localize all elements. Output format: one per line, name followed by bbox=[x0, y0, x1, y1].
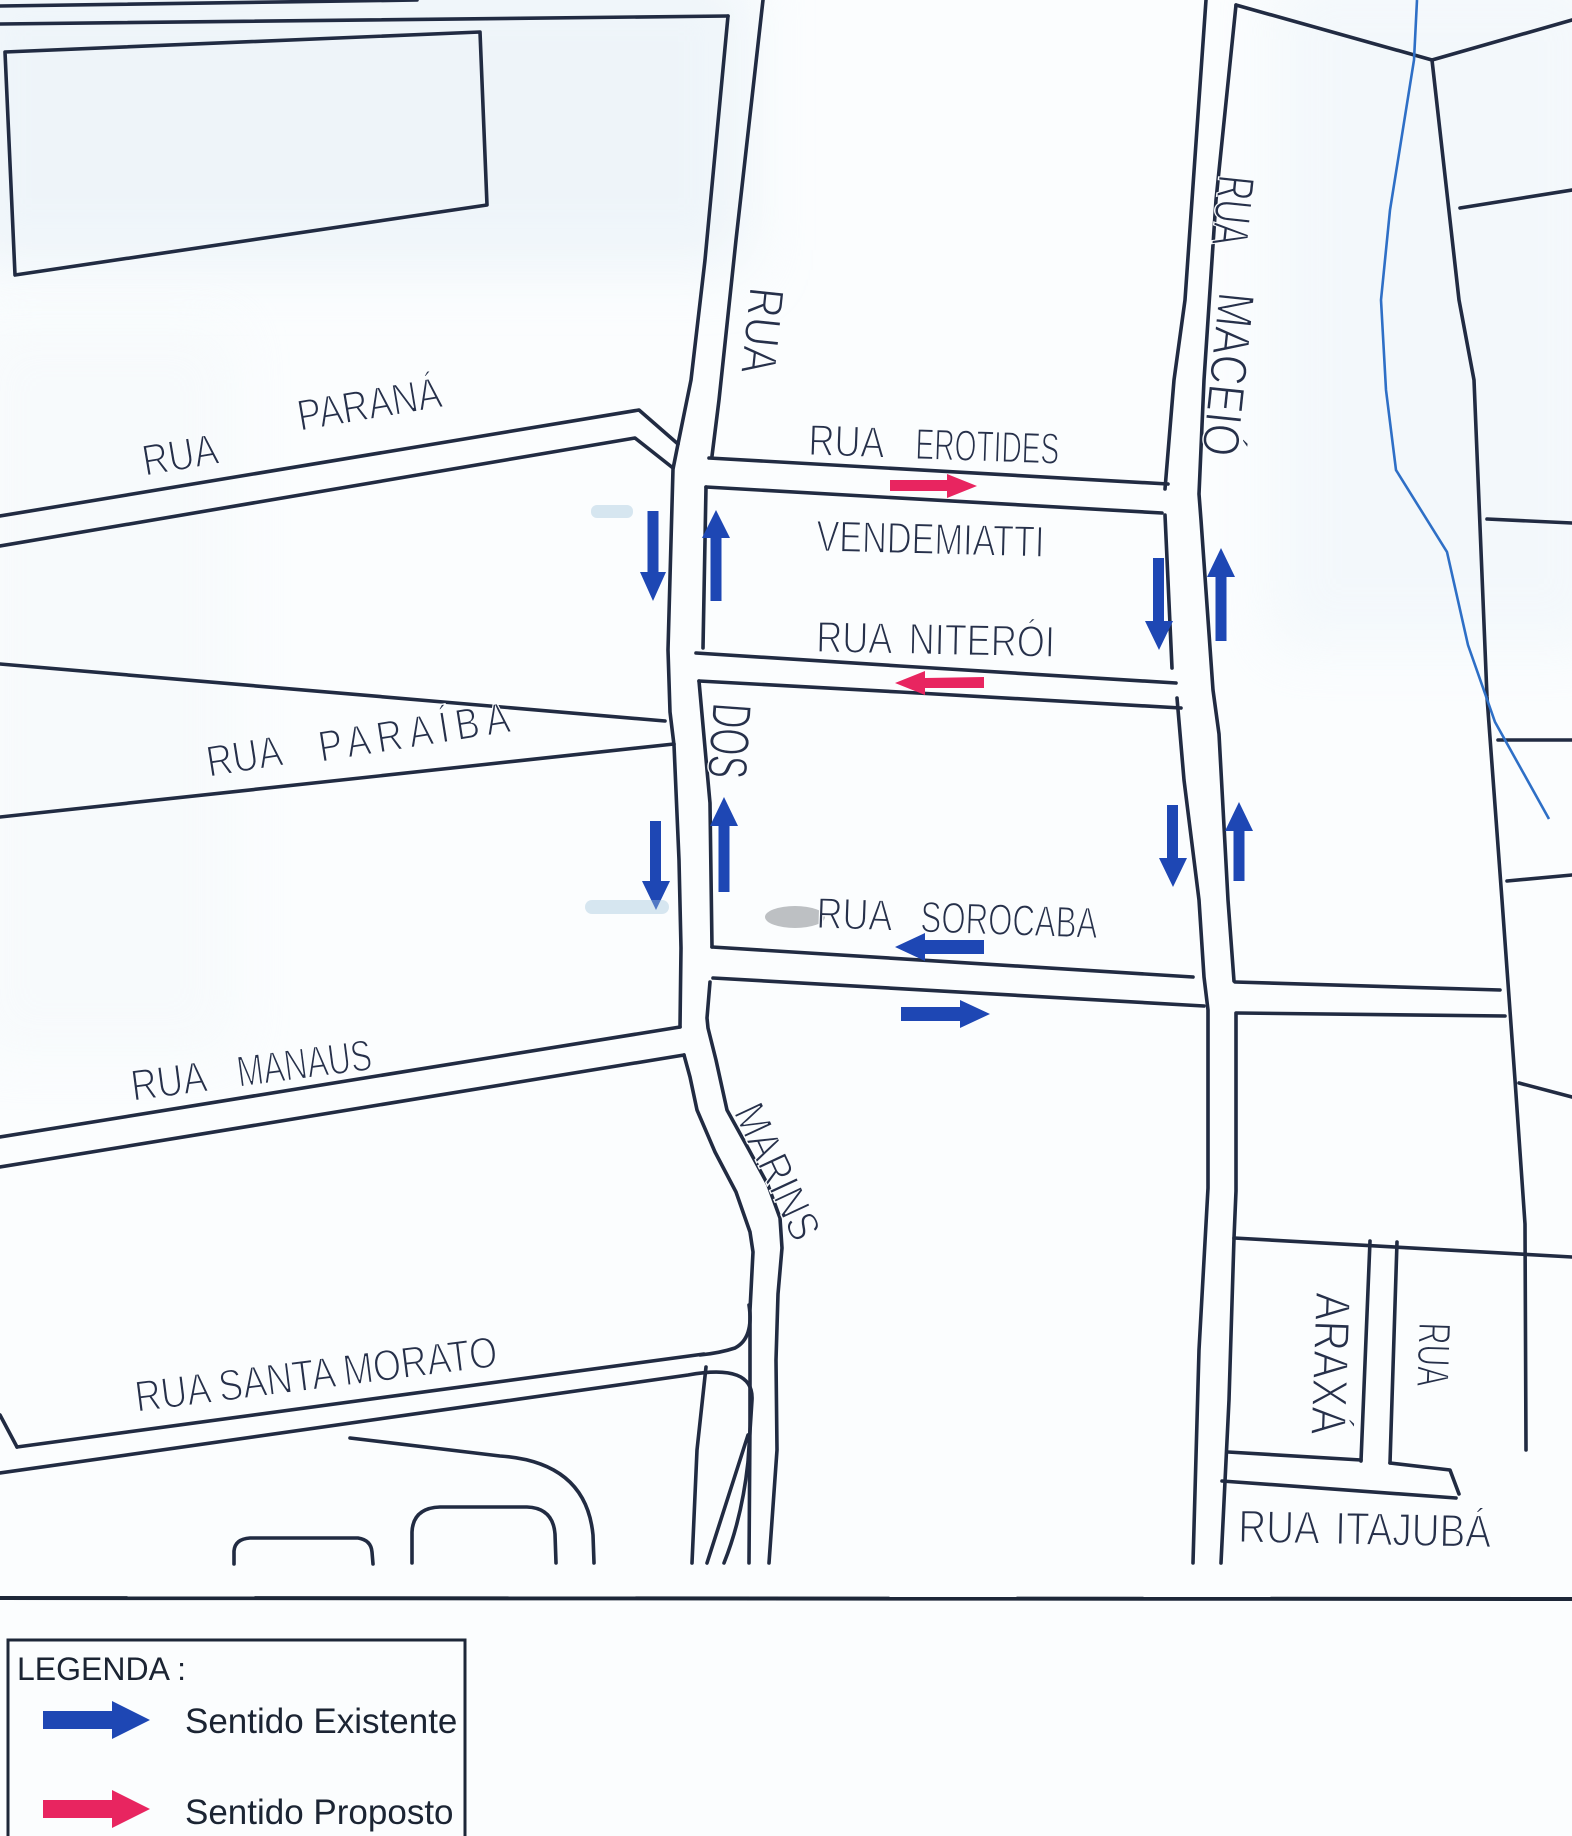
svg-text:RUA: RUA bbox=[808, 416, 886, 468]
svg-text:RUA ITAJUBÁ: RUA ITAJUBÁ bbox=[1238, 1501, 1492, 1557]
svg-text:VENDEMIATTI: VENDEMIATTI bbox=[816, 512, 1045, 567]
svg-text:RUA: RUA bbox=[128, 1052, 210, 1111]
svg-text:RUA: RUA bbox=[1200, 173, 1265, 250]
svg-text:RUA: RUA bbox=[816, 889, 894, 941]
svg-text:DOS: DOS bbox=[696, 701, 764, 780]
svg-text:LEGENDA :: LEGENDA : bbox=[17, 1651, 186, 1687]
svg-text:Sentido Proposto: Sentido Proposto bbox=[185, 1793, 454, 1832]
svg-text:RUA: RUA bbox=[1406, 1322, 1459, 1388]
svg-text:RUA NITERÓI: RUA NITERÓI bbox=[816, 613, 1056, 667]
svg-text:RUA: RUA bbox=[730, 285, 795, 377]
svg-text:Sentido Existente: Sentido Existente bbox=[185, 1702, 457, 1741]
svg-text:ARAXÁ: ARAXÁ bbox=[1300, 1292, 1361, 1436]
svg-text:EROTIDES: EROTIDES bbox=[915, 420, 1061, 474]
svg-text:SOROCABA: SOROCABA bbox=[920, 893, 1099, 949]
